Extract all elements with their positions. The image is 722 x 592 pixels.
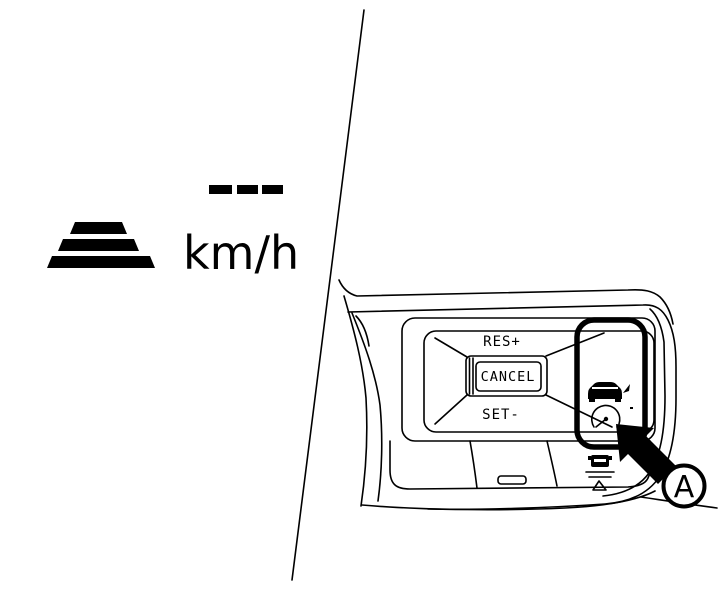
cruise-control-car-gauge-icon <box>588 382 633 432</box>
cancel-button-label: CANCEL <box>481 369 536 385</box>
manual-illustration: km/h RES+ SET- CANCEL <box>0 0 722 592</box>
tray-slot <box>498 476 526 484</box>
res-button-label: RES+ <box>483 334 521 350</box>
cruise-control-diagram: km/h RES+ SET- CANCEL <box>0 0 722 592</box>
cancel-button: CANCEL <box>466 356 547 396</box>
panel-bottom-contour <box>362 491 655 510</box>
meter-display: km/h <box>47 185 299 280</box>
tray-divider-left <box>470 441 477 488</box>
callout-label: A <box>674 470 695 505</box>
following-distance-bars-icon <box>47 222 155 268</box>
speed-unit-label: km/h <box>183 226 299 280</box>
callout: A <box>616 424 705 507</box>
set-speed-dashes <box>209 185 283 194</box>
tray-divider-right <box>547 441 557 486</box>
set-button-label: SET- <box>482 407 520 423</box>
set-distance-button-icon <box>586 455 614 490</box>
